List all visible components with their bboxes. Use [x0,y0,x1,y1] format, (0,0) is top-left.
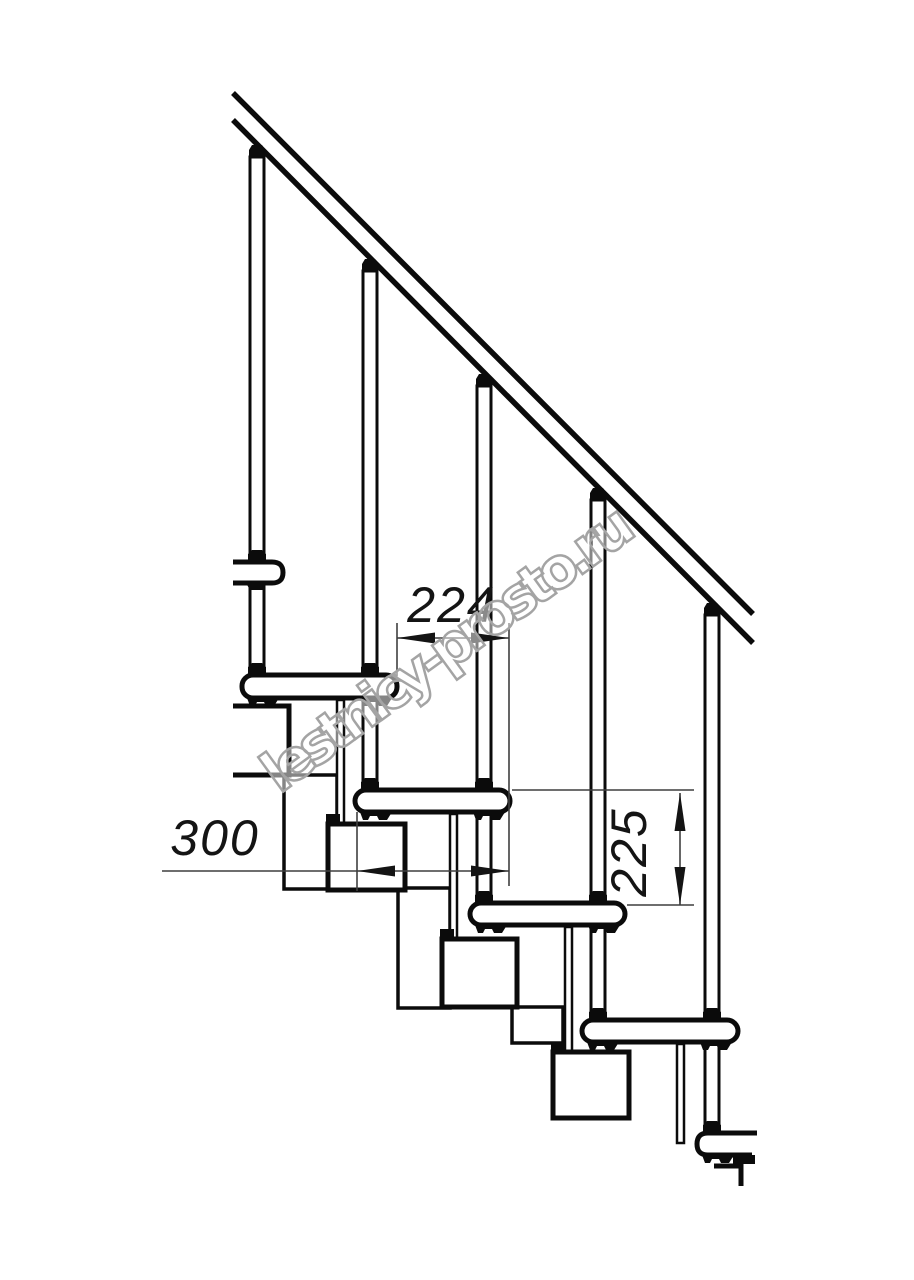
tread [470,903,625,925]
module-hook-mark [326,814,340,825]
handrail-bottom-line [233,120,753,643]
stringer-module-box [553,1052,629,1118]
handrail-connector [476,374,492,386]
floor-step-line [714,1166,741,1186]
stringer-strut [450,814,457,938]
technical-drawing-page: 224 300 225 lestnicy-prosto.ru [0,0,914,1280]
baluster-clamp [703,1008,721,1020]
baluster [705,615,719,1133]
baluster-clamp [703,1121,721,1133]
handrail [233,93,753,643]
baluster-clamp [589,1008,607,1020]
baluster-clamp [248,663,266,675]
dimension-label-riser-height: 225 [601,807,657,897]
stringer-strut [565,927,572,1051]
baluster [250,157,264,675]
stringer-column [512,1007,563,1043]
stringer-module-box [442,939,517,1007]
tread [355,790,510,812]
baluster-clamp [248,550,266,562]
stringer-strut [677,1044,684,1143]
handrail-connector [362,259,378,271]
clamp-mark [702,1155,734,1163]
clamp-mark [733,1155,755,1164]
baluster-clamp [475,778,493,790]
clamp-mark [360,812,392,820]
arrowhead-down [675,867,686,905]
dimension-label-tread-length: 300 [170,810,259,866]
arrowhead-up [675,793,686,831]
staircase-drawing: 224 300 225 lestnicy-prosto.ru [0,0,914,1280]
tread-upper-cropped [233,562,283,583]
handrail-top-line [233,93,753,614]
watermark-text: lestnicy-prosto.ru [249,495,643,806]
handrail-connector [704,603,720,615]
tread-lower-cropped [697,1133,757,1155]
tread [582,1020,738,1042]
module-hook-mark [440,929,454,940]
clamp-mark [475,925,507,933]
stringer-module-box [328,824,405,890]
baluster-clamp [475,891,493,903]
clamp-mark [587,1042,619,1050]
module-hook-mark [551,1042,565,1053]
baluster-clamp [361,778,379,790]
handrail-connector [249,145,265,157]
